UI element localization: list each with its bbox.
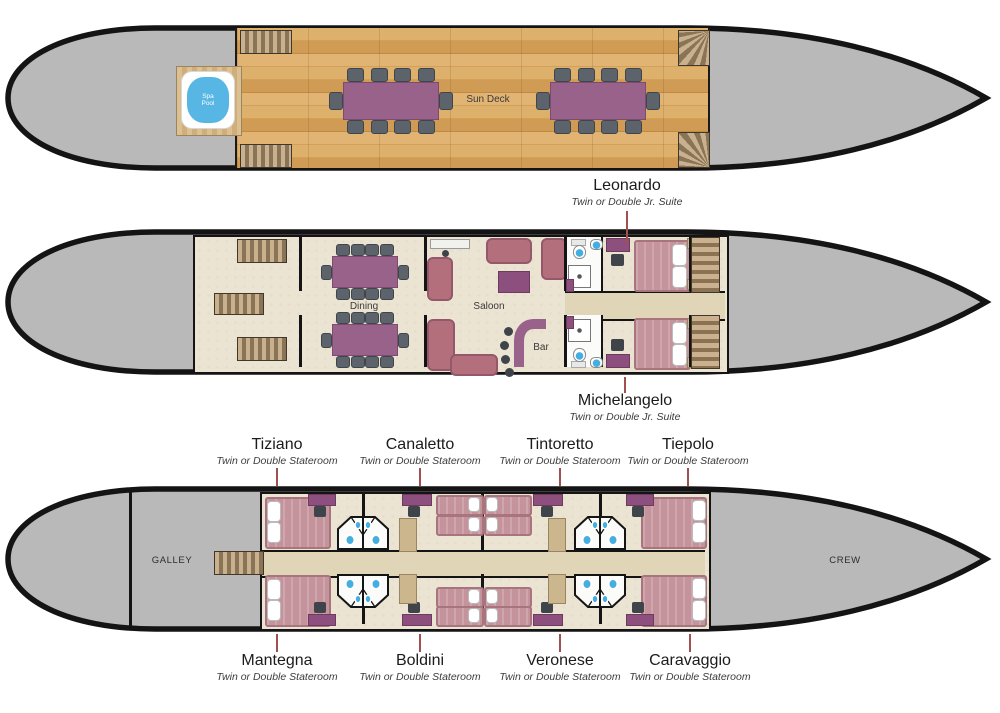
chair bbox=[536, 92, 550, 110]
stool bbox=[541, 506, 553, 517]
cabin-name: Leonardo bbox=[527, 178, 727, 195]
desk bbox=[533, 494, 563, 506]
cabin-type: Twin or Double Jr. Suite bbox=[527, 196, 727, 208]
ship-deck-plan: Spa Pool Sun Deck Dining Saloon Bar GALL… bbox=[0, 0, 1000, 713]
sofa bbox=[450, 354, 498, 376]
table bbox=[343, 82, 439, 120]
chair bbox=[371, 68, 388, 82]
wardrobe bbox=[548, 574, 566, 604]
stairs bbox=[214, 551, 264, 575]
leader-line bbox=[419, 634, 421, 652]
tv-sideboard bbox=[430, 239, 470, 249]
toilet bbox=[573, 348, 586, 362]
closet bbox=[566, 279, 574, 292]
sun-deck-label: Sun Deck bbox=[448, 94, 528, 105]
pillow bbox=[486, 497, 498, 512]
pillow bbox=[468, 608, 480, 623]
chair bbox=[336, 356, 350, 368]
cabin-type: Twin or Double Stateroom bbox=[600, 671, 780, 683]
chair bbox=[554, 68, 571, 82]
toilet-tank bbox=[571, 361, 586, 368]
dining-table bbox=[332, 324, 398, 356]
desk bbox=[402, 494, 432, 506]
shared-bathroom bbox=[337, 574, 389, 608]
leader-line bbox=[419, 468, 421, 486]
stool bbox=[314, 506, 326, 517]
crew-label: CREW bbox=[798, 555, 892, 566]
desk bbox=[626, 494, 654, 506]
stairs bbox=[214, 293, 264, 315]
galley-label: GALLEY bbox=[130, 555, 214, 566]
desk bbox=[626, 614, 654, 626]
chair bbox=[398, 265, 409, 280]
chair bbox=[380, 244, 394, 256]
chair bbox=[578, 68, 595, 82]
desk bbox=[308, 614, 336, 626]
bar-stool bbox=[501, 355, 510, 364]
pillow bbox=[692, 522, 706, 543]
wardrobe bbox=[548, 518, 566, 552]
pillow bbox=[468, 517, 480, 532]
pillow bbox=[692, 600, 706, 621]
cabin-name: Michelangelo bbox=[525, 393, 725, 410]
chair bbox=[351, 244, 365, 256]
chair bbox=[601, 120, 618, 134]
shared-bathroom bbox=[574, 574, 626, 608]
shared-bathroom bbox=[574, 516, 626, 550]
chair bbox=[351, 288, 365, 300]
coffee-table bbox=[498, 271, 530, 293]
cabin-label-leonardo: Leonardo Twin or Double Jr. Suite bbox=[527, 178, 727, 208]
cabin-name: Tiepolo bbox=[598, 437, 778, 454]
cabin-label-michelangelo: Michelangelo Twin or Double Jr. Suite bbox=[525, 393, 725, 423]
stairs bbox=[237, 337, 287, 361]
pillow bbox=[672, 322, 687, 344]
spa-pool: Spa Pool bbox=[187, 77, 229, 123]
chair bbox=[365, 288, 379, 300]
stairs bbox=[691, 237, 720, 293]
main-deck: Dining Saloon Bar bbox=[0, 227, 1000, 377]
stool bbox=[314, 602, 326, 613]
stool bbox=[632, 506, 644, 517]
pillow bbox=[486, 589, 498, 604]
sun-deck: Spa Pool Sun Deck bbox=[0, 23, 1000, 173]
pillow bbox=[468, 589, 480, 604]
leader-line bbox=[276, 468, 278, 486]
chair bbox=[351, 356, 365, 368]
chair bbox=[394, 68, 411, 82]
chair bbox=[398, 333, 409, 348]
stool bbox=[611, 339, 624, 351]
sofa bbox=[486, 238, 532, 264]
wall bbox=[299, 237, 302, 291]
chair bbox=[336, 244, 350, 256]
pillow bbox=[267, 522, 281, 543]
chair bbox=[578, 120, 595, 134]
chair bbox=[336, 312, 350, 324]
leader-line bbox=[276, 634, 278, 652]
pillow bbox=[692, 500, 706, 521]
dining-table bbox=[332, 256, 398, 288]
dining-label: Dining bbox=[334, 301, 394, 312]
shared-bathroom bbox=[337, 516, 389, 550]
wall bbox=[299, 315, 302, 367]
sink bbox=[590, 239, 603, 250]
toilet bbox=[573, 245, 586, 259]
stool bbox=[408, 506, 420, 517]
chair bbox=[380, 312, 394, 324]
chair bbox=[347, 68, 364, 82]
pillow bbox=[672, 266, 687, 288]
wardrobe bbox=[399, 574, 417, 604]
leader-line bbox=[626, 211, 628, 244]
pillow bbox=[692, 578, 706, 599]
cabin-type: Twin or Double Stateroom bbox=[598, 455, 778, 467]
spa-pool-label: Spa Pool bbox=[196, 93, 220, 108]
cabin-type: Twin or Double Jr. Suite bbox=[525, 411, 725, 423]
chair bbox=[347, 120, 364, 134]
pillow bbox=[672, 244, 687, 266]
pillow bbox=[672, 344, 687, 366]
chair bbox=[418, 120, 435, 134]
chair bbox=[380, 288, 394, 300]
chair bbox=[321, 265, 332, 280]
stairs bbox=[237, 239, 287, 263]
pillow bbox=[267, 579, 281, 600]
bar-stool bbox=[504, 327, 513, 336]
stool bbox=[611, 254, 624, 266]
stairs bbox=[678, 30, 710, 66]
chair bbox=[365, 312, 379, 324]
chair bbox=[554, 120, 571, 134]
leader-line bbox=[687, 468, 689, 486]
chair bbox=[394, 120, 411, 134]
chair bbox=[365, 356, 379, 368]
leader-line bbox=[624, 377, 626, 393]
stairs bbox=[678, 132, 710, 168]
stairs bbox=[240, 30, 292, 54]
table bbox=[550, 82, 646, 120]
leader-line bbox=[559, 634, 561, 652]
saloon-label: Saloon bbox=[459, 301, 519, 312]
chair bbox=[418, 68, 435, 82]
chair bbox=[371, 120, 388, 134]
bar-stool bbox=[505, 368, 514, 377]
stool bbox=[442, 250, 449, 257]
chair bbox=[380, 356, 394, 368]
chair bbox=[646, 92, 660, 110]
chair bbox=[625, 68, 642, 82]
chair bbox=[329, 92, 343, 110]
pillow bbox=[486, 608, 498, 623]
leader-line bbox=[559, 468, 561, 486]
wall bbox=[129, 489, 132, 629]
wardrobe bbox=[399, 518, 417, 552]
pillow bbox=[468, 497, 480, 512]
chair bbox=[351, 312, 365, 324]
cabin-label-caravaggio: Caravaggio Twin or Double Stateroom bbox=[600, 653, 780, 683]
lower-deck: GALLEY CREW bbox=[0, 484, 1000, 634]
chair bbox=[439, 92, 453, 110]
sink bbox=[590, 357, 603, 368]
stairs bbox=[691, 315, 720, 369]
wardrobe bbox=[606, 354, 630, 368]
chair bbox=[625, 120, 642, 134]
chair bbox=[365, 244, 379, 256]
chair bbox=[336, 288, 350, 300]
desk bbox=[533, 614, 563, 626]
pillow bbox=[486, 517, 498, 532]
armchair bbox=[427, 257, 453, 301]
chair bbox=[601, 68, 618, 82]
pillow bbox=[267, 600, 281, 621]
cabin-label-tiepolo: Tiepolo Twin or Double Stateroom bbox=[598, 437, 778, 467]
desk bbox=[308, 494, 336, 506]
desk bbox=[402, 614, 432, 626]
closet bbox=[566, 316, 574, 329]
stool bbox=[632, 602, 644, 613]
leader-line bbox=[689, 634, 691, 652]
cabin-name: Caravaggio bbox=[600, 653, 780, 670]
chair bbox=[321, 333, 332, 348]
bar-label: Bar bbox=[524, 342, 558, 353]
pillow bbox=[267, 501, 281, 522]
stairs bbox=[240, 144, 292, 168]
bar-stool bbox=[500, 341, 509, 350]
